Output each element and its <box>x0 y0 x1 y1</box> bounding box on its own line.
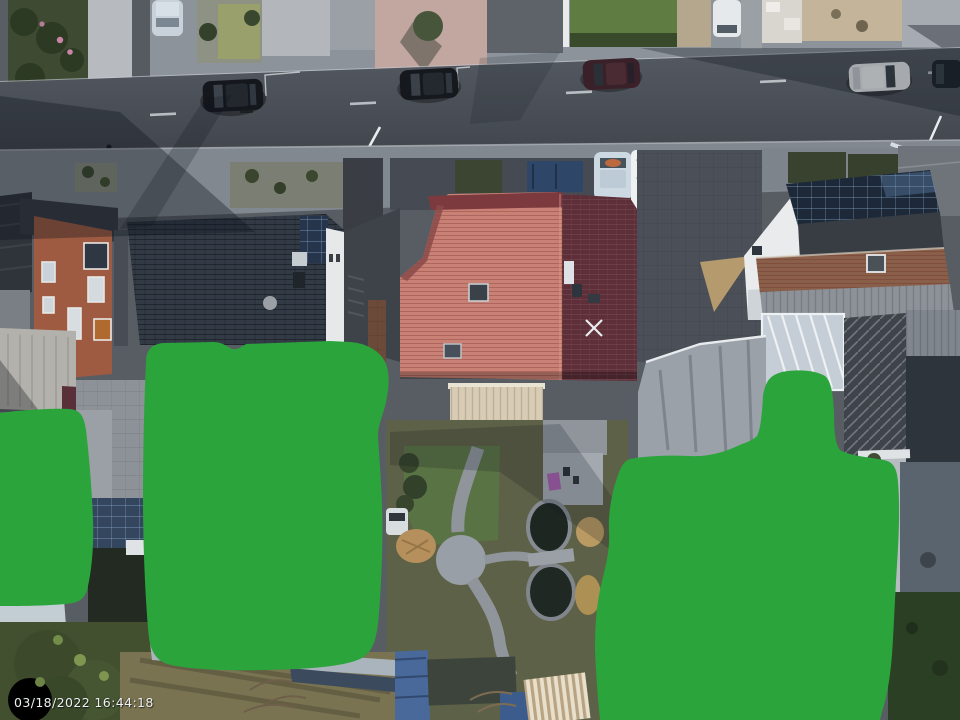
seam-lines <box>906 310 960 358</box>
roof-vent <box>572 284 582 297</box>
shaded-paving <box>487 0 563 53</box>
rooftop-box <box>766 2 780 12</box>
wall-shadow-strip <box>132 0 150 86</box>
light-blue-car <box>594 152 632 200</box>
hedge-row <box>570 33 677 47</box>
side-driveway <box>114 230 128 346</box>
aerial-drone-photo: 03/18/2022 16:44:18 <box>0 0 960 720</box>
white-chimney <box>564 261 574 284</box>
chimney <box>293 272 305 288</box>
small-tree <box>413 11 443 41</box>
planted-bed <box>230 162 344 208</box>
skylight <box>444 344 461 358</box>
white-fence <box>563 0 569 47</box>
shrub <box>245 169 259 183</box>
corrugated-roof <box>523 672 590 720</box>
garage-ribs <box>450 387 543 420</box>
rooftop-box <box>784 18 800 30</box>
lawn-patch <box>906 622 918 634</box>
garden-pond <box>528 565 574 619</box>
satellite-dish <box>263 296 277 310</box>
white-car-partial <box>386 508 408 535</box>
stone-patio-circle <box>436 535 486 585</box>
white-gable-wall <box>326 228 344 345</box>
gravel-plant <box>831 9 841 19</box>
paving <box>330 0 375 50</box>
hedge-bed <box>455 160 502 193</box>
skylight <box>469 284 488 301</box>
roof-hatch <box>588 294 600 303</box>
privacy-mask-center <box>143 341 389 670</box>
dark-roof-block <box>906 356 960 464</box>
shrub <box>274 182 286 194</box>
paved-driveway <box>262 0 330 56</box>
lawn-patch <box>932 660 948 676</box>
gray-paving <box>741 0 762 49</box>
shrub <box>199 23 217 41</box>
blue-gray-paving <box>900 462 960 596</box>
white-van-top <box>713 0 741 37</box>
silver-car-top <box>152 0 183 36</box>
dark-lawn <box>888 592 960 720</box>
gravel-path-spur <box>485 556 532 560</box>
paving-feature <box>920 552 936 568</box>
roof-skylight <box>867 255 885 272</box>
tan-paving <box>677 0 711 47</box>
center-garden <box>385 420 628 720</box>
skylight <box>292 252 307 266</box>
gable-window <box>329 254 333 262</box>
gray-wall <box>0 290 30 332</box>
privacy-mask-left <box>0 409 93 606</box>
beige-gravel-bed <box>802 0 902 41</box>
shrub <box>306 170 318 182</box>
gravel-plant <box>856 20 868 32</box>
shrub <box>244 10 260 26</box>
eave-shadow <box>400 372 637 379</box>
gable-window <box>752 246 762 255</box>
hedge-block <box>788 152 846 183</box>
timestamp-watermark: 03/18/2022 16:44:18 <box>14 695 154 710</box>
driveway-texture <box>637 150 762 362</box>
gable-window <box>336 254 340 262</box>
photo-canvas <box>0 0 960 720</box>
